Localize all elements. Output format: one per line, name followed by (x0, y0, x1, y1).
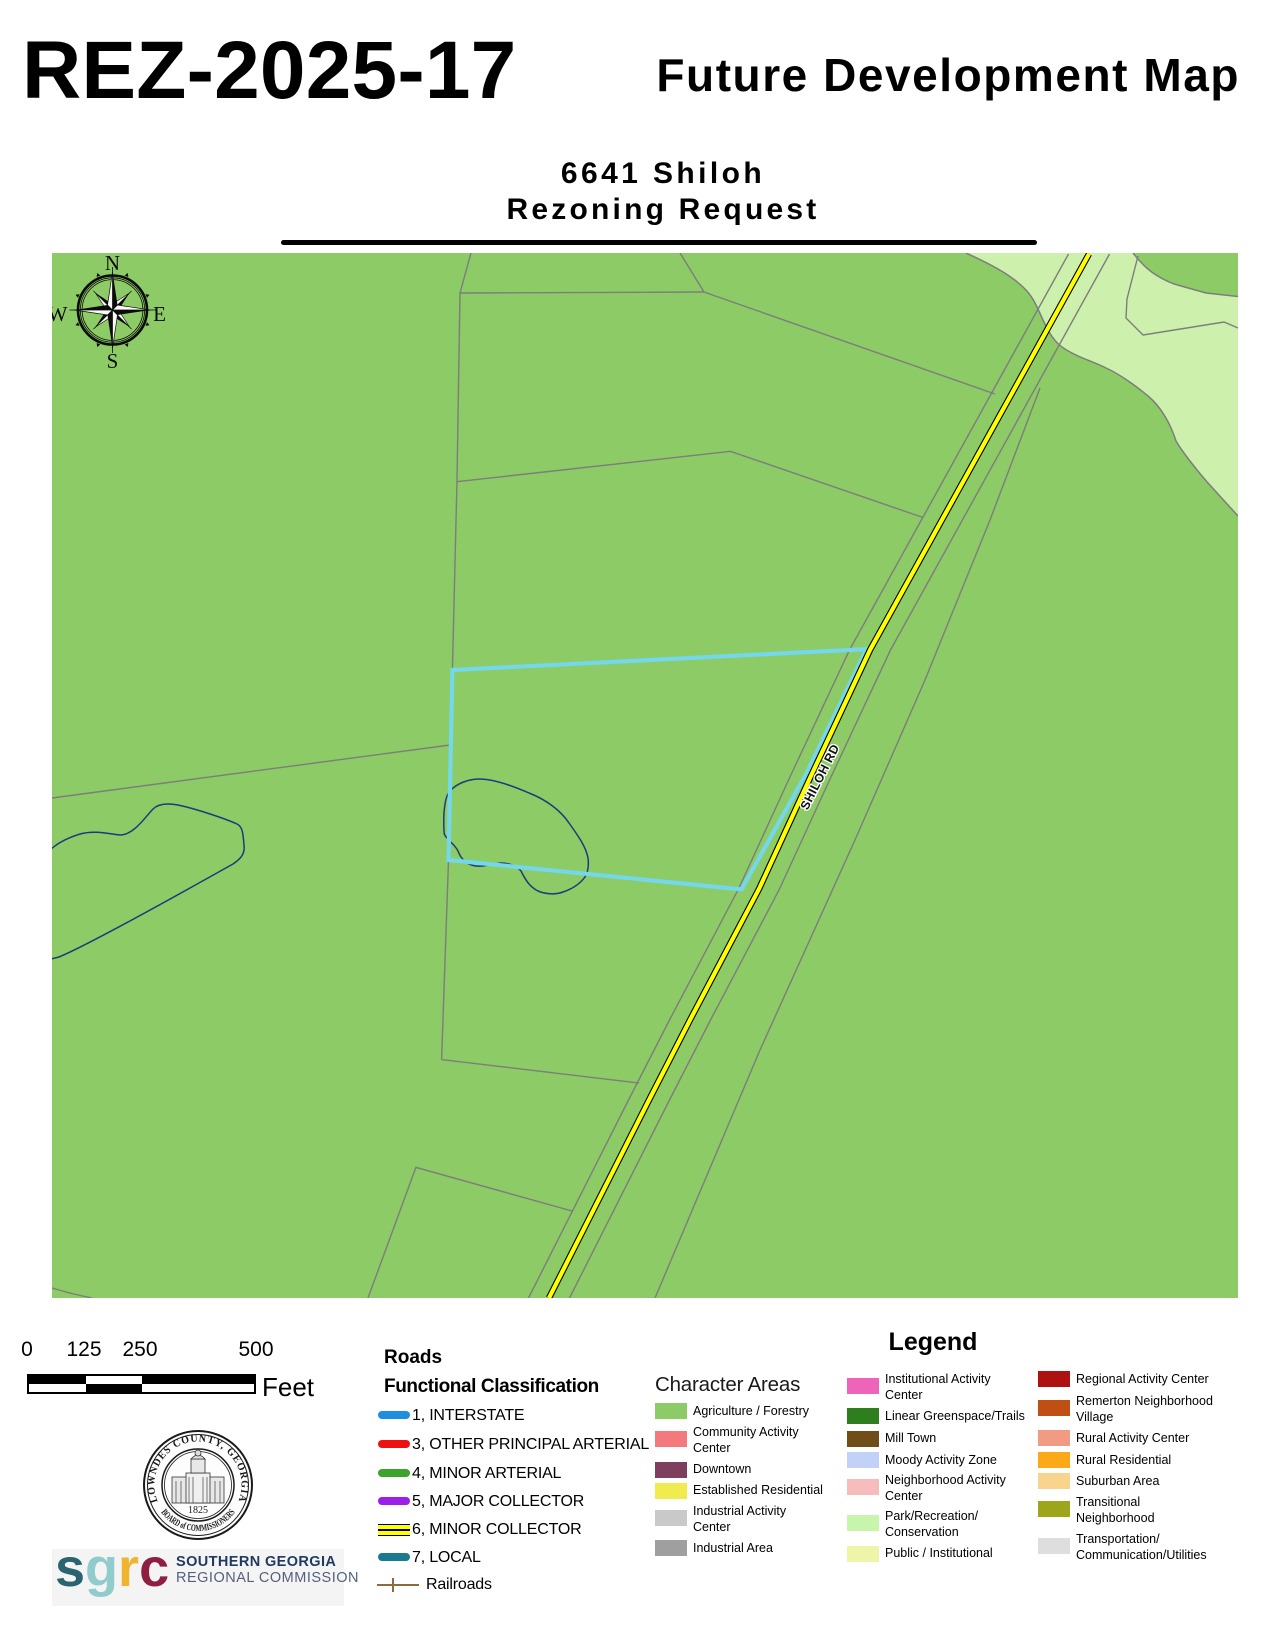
svg-text:N: N (105, 253, 120, 275)
svg-text:E: E (153, 302, 166, 326)
svg-text:W: W (52, 302, 68, 326)
svg-text:1825: 1825 (188, 1505, 208, 1516)
svg-text:S: S (107, 349, 119, 373)
